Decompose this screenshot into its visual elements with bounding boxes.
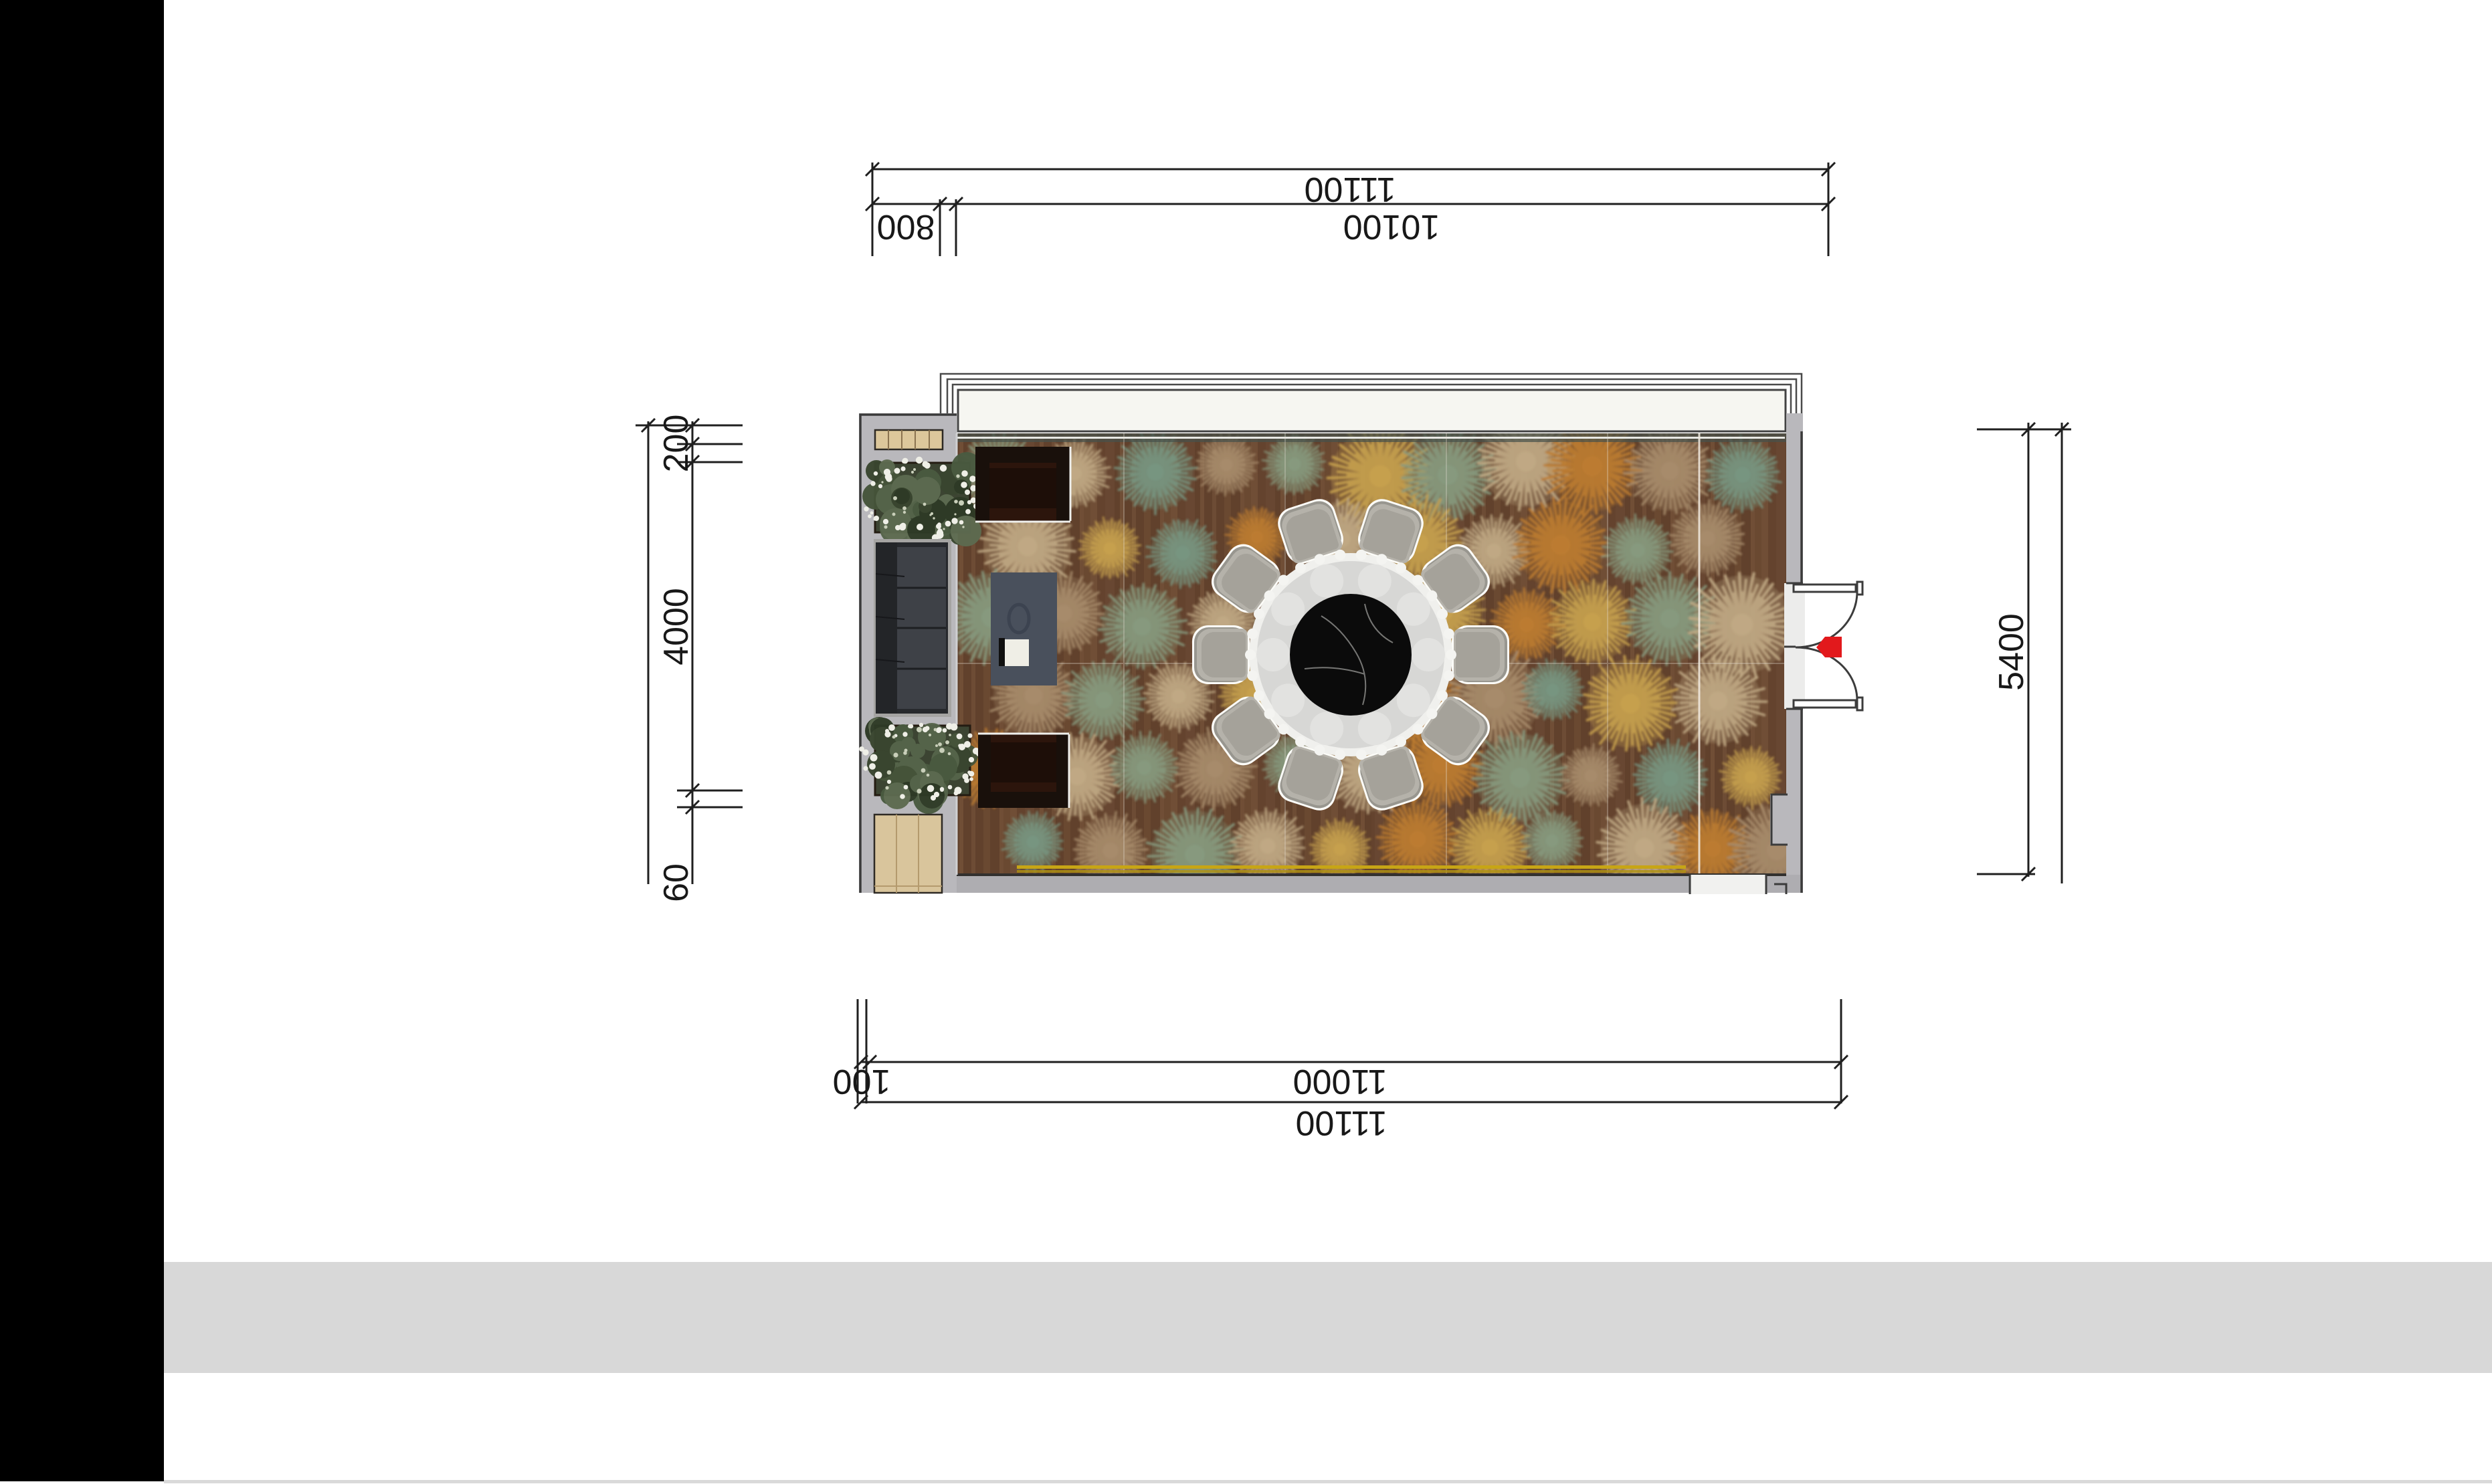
svg-text:100: 100 [833, 1062, 891, 1101]
svg-text:10100: 10100 [1343, 207, 1440, 246]
svg-text:5400: 5400 [1992, 613, 2031, 691]
svg-text:11000: 11000 [1293, 1062, 1387, 1101]
svg-text:800: 800 [877, 207, 935, 246]
svg-text:11100: 11100 [1305, 170, 1396, 209]
svg-text:4000: 4000 [657, 588, 696, 665]
svg-text:60: 60 [657, 863, 696, 902]
svg-text:11100: 11100 [1296, 1103, 1387, 1142]
svg-text:200: 200 [657, 415, 696, 473]
